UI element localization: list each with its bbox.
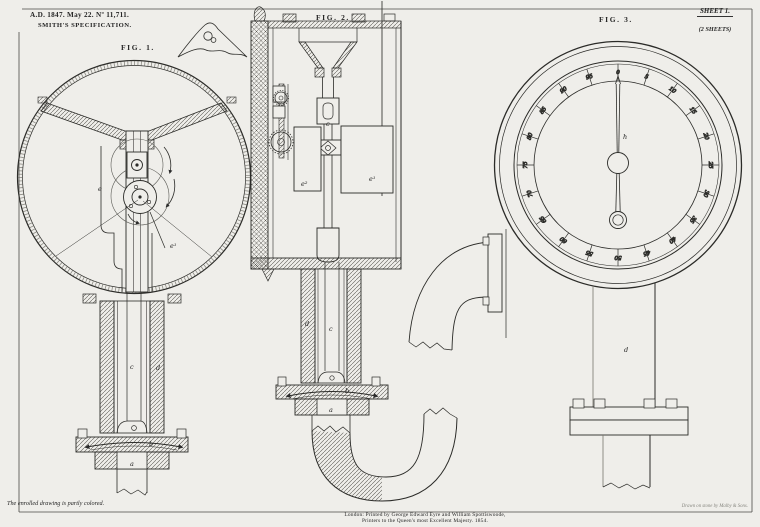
fig2-part-e1: e¹ [369, 175, 375, 183]
dial-number: 75 [523, 161, 529, 169]
patent-drawing-canvas: e e¹ c d b a [0, 0, 760, 527]
fig1-part-b: b [149, 440, 153, 448]
fig2-part-b: b [345, 387, 349, 395]
imprint-line-2: Printers to the Queen's most Excellent M… [240, 518, 610, 524]
sheet-label: SHEET 1. [697, 7, 733, 17]
fig2-part-c-top: c [326, 120, 330, 128]
fig1-label: FIG. 1. [121, 43, 155, 52]
fig1-part-c: c [130, 363, 134, 371]
fig2-part-c: c [329, 325, 333, 333]
dial-number: 0 [616, 70, 620, 76]
fig2-part-a: a [329, 406, 333, 414]
fig2-label: FIG. 2. [316, 13, 350, 22]
fig1-part-e1: e¹ [170, 242, 176, 250]
fig2-part-e2: e² [301, 180, 308, 188]
fig3-part-d: d [624, 346, 628, 354]
fig1-part-a: a [130, 460, 134, 468]
enrolled-drawing-note: The enrolled drawing is partly colored. [7, 500, 104, 507]
fig3-part-h: h [623, 133, 627, 141]
sheet-number-block: SHEET 1. (2 SHEETS) [678, 0, 752, 36]
sheet-count: (2 SHEETS) [699, 26, 732, 33]
dial-number: 50 [614, 254, 622, 260]
fig3-drawing: 05101520253035404550556065707580859095 [495, 42, 742, 490]
header-title-line: SMITH'S SPECIFICATION. [38, 22, 132, 29]
fig2-drawing: c e² e¹ d c b a [251, 7, 401, 415]
fig1-drawing: e e¹ c d b a [18, 61, 251, 496]
header-date-line: A.D. 1847. May 22. Nº 11,711. [30, 11, 129, 19]
dial-number: 25 [707, 160, 713, 169]
lithographer-credit: Drawn on stone by Malby & Sons. [682, 504, 748, 509]
patent-sheet: e e¹ c d b a [0, 0, 760, 527]
detail-sketch [178, 23, 247, 57]
fig1-part-d: d [156, 364, 160, 372]
imprint-block: London: Printed by George Edward Eyre an… [240, 512, 610, 525]
fig1-part-e: e [98, 185, 102, 193]
fig3-label: FIG. 3. [599, 15, 633, 24]
fig2-part-d: d [305, 320, 309, 328]
